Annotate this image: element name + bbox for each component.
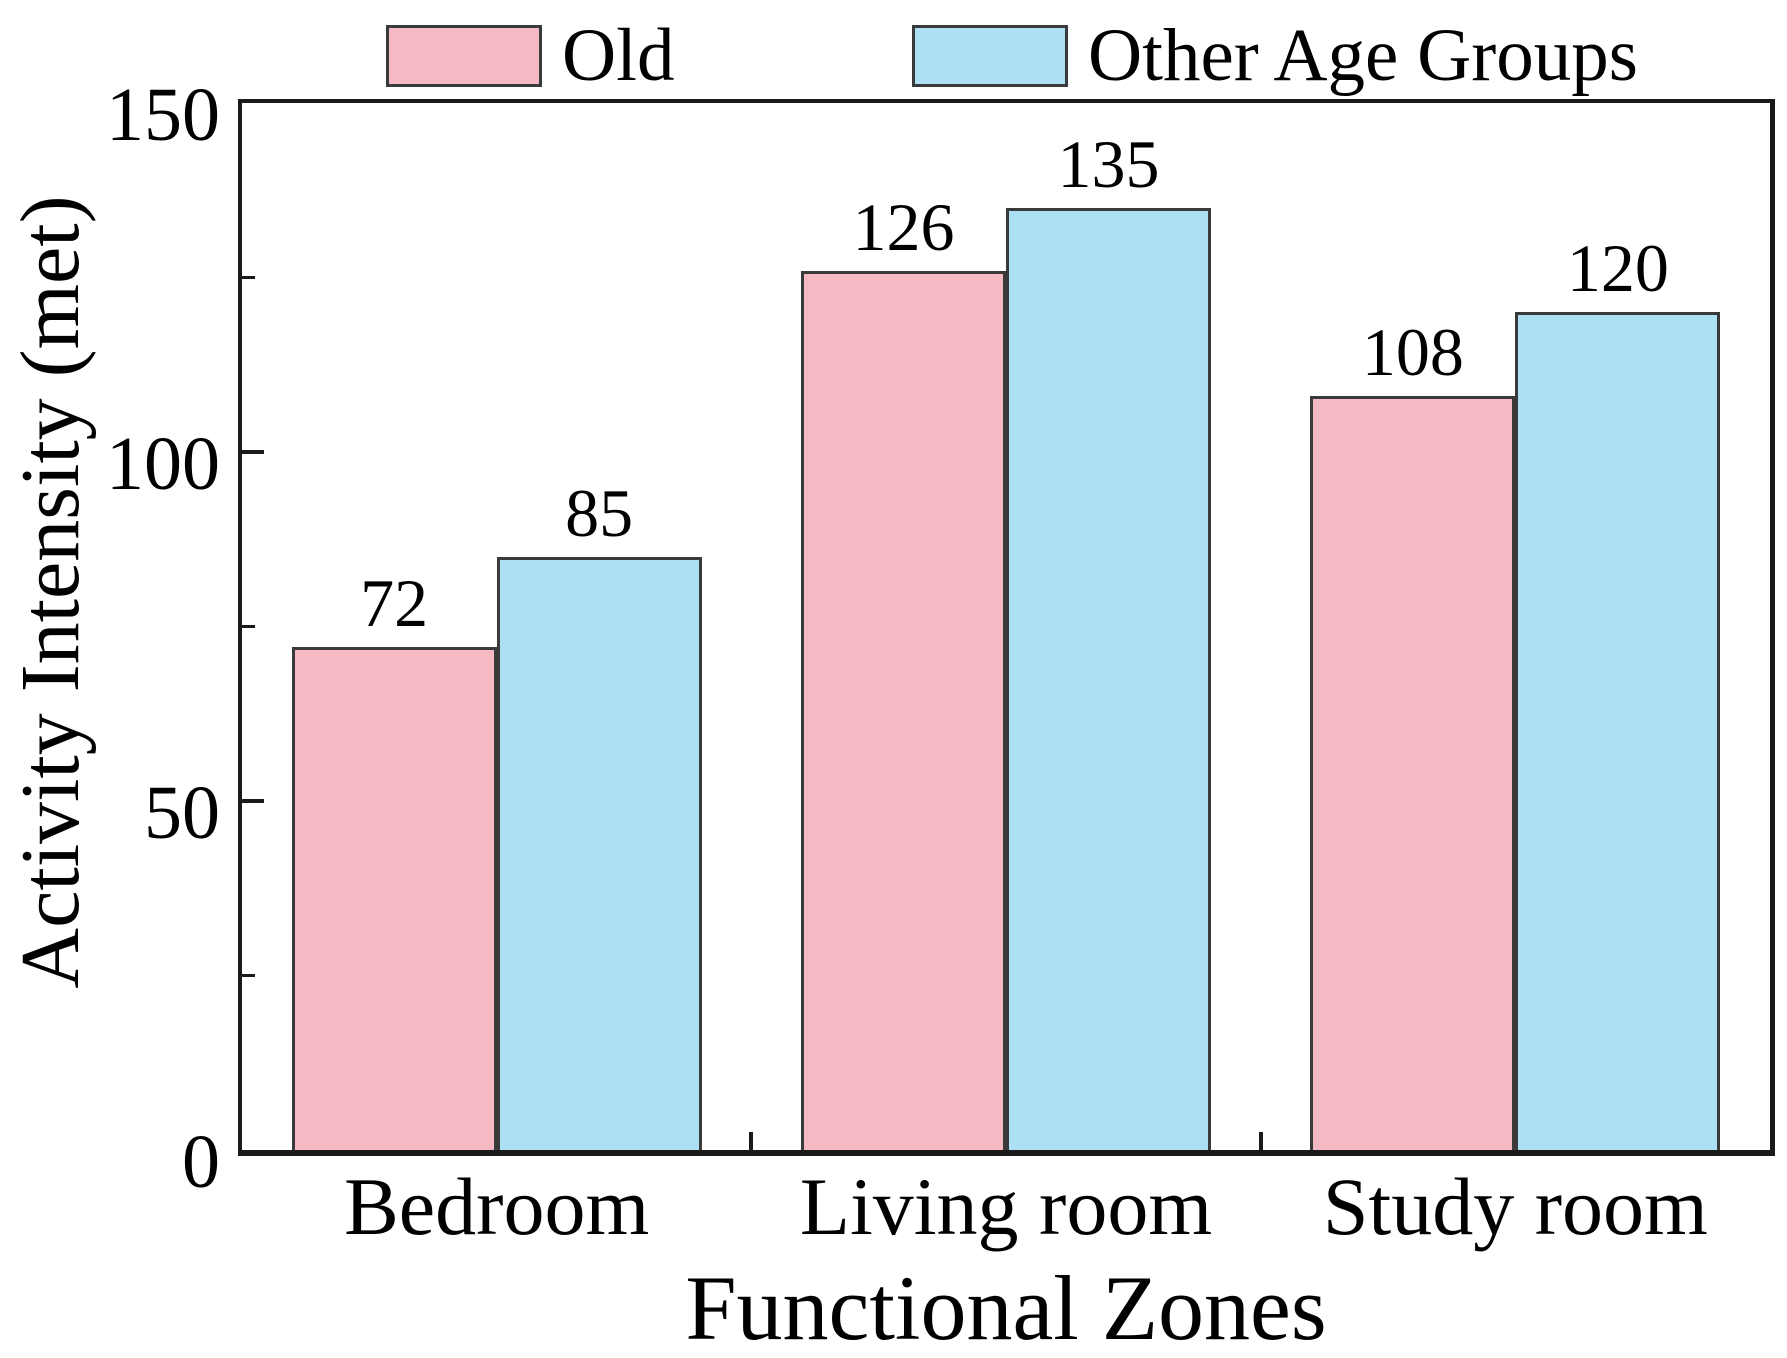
legend-label: Other Age Groups <box>1088 18 1638 93</box>
bar-value-label: 135 <box>979 130 1239 198</box>
legend-label: Old <box>562 18 675 93</box>
bar-other-age-groups <box>497 557 702 1150</box>
bar-value-label: 108 <box>1283 318 1543 386</box>
y-axis-major-tick <box>242 450 264 454</box>
bar-old <box>292 647 497 1150</box>
legend-item-other-age-groups: Other Age Groups <box>912 18 1638 93</box>
bar-other-age-groups <box>1515 312 1720 1150</box>
bar-value-label: 120 <box>1488 234 1748 302</box>
x-axis-minor-tick <box>749 1132 753 1150</box>
legend-swatch <box>386 25 542 87</box>
bar-value-label: 85 <box>469 479 729 547</box>
y-axis-tick-label: 150 <box>30 77 220 153</box>
x-axis-title: Functional Zones <box>685 1262 1326 1354</box>
x-axis-minor-tick <box>1259 1132 1263 1150</box>
y-axis-minor-tick <box>242 974 255 977</box>
bar-other-age-groups <box>1006 208 1211 1150</box>
bar-chart-figure: OldOther Age Groups Activity Intensity (… <box>0 0 1787 1358</box>
legend-swatch <box>912 25 1068 87</box>
y-axis-minor-tick <box>242 276 255 279</box>
y-axis-title: Activity Intensity (met) <box>9 195 93 988</box>
bar-old <box>1310 396 1515 1150</box>
y-axis-tick-label: 100 <box>30 426 220 502</box>
bar-old <box>801 271 1006 1150</box>
legend-item-old: Old <box>386 18 675 93</box>
y-axis-tick-label: 50 <box>30 775 220 851</box>
bar-value-label: 72 <box>264 569 524 637</box>
x-axis-category-label: Study room <box>1195 1166 1787 1248</box>
y-axis-minor-tick <box>242 625 255 628</box>
bar-value-label: 126 <box>774 193 1034 261</box>
plot-area: 0501001507285Bedroom126135Living room108… <box>238 99 1775 1156</box>
y-axis-major-tick <box>242 799 264 803</box>
